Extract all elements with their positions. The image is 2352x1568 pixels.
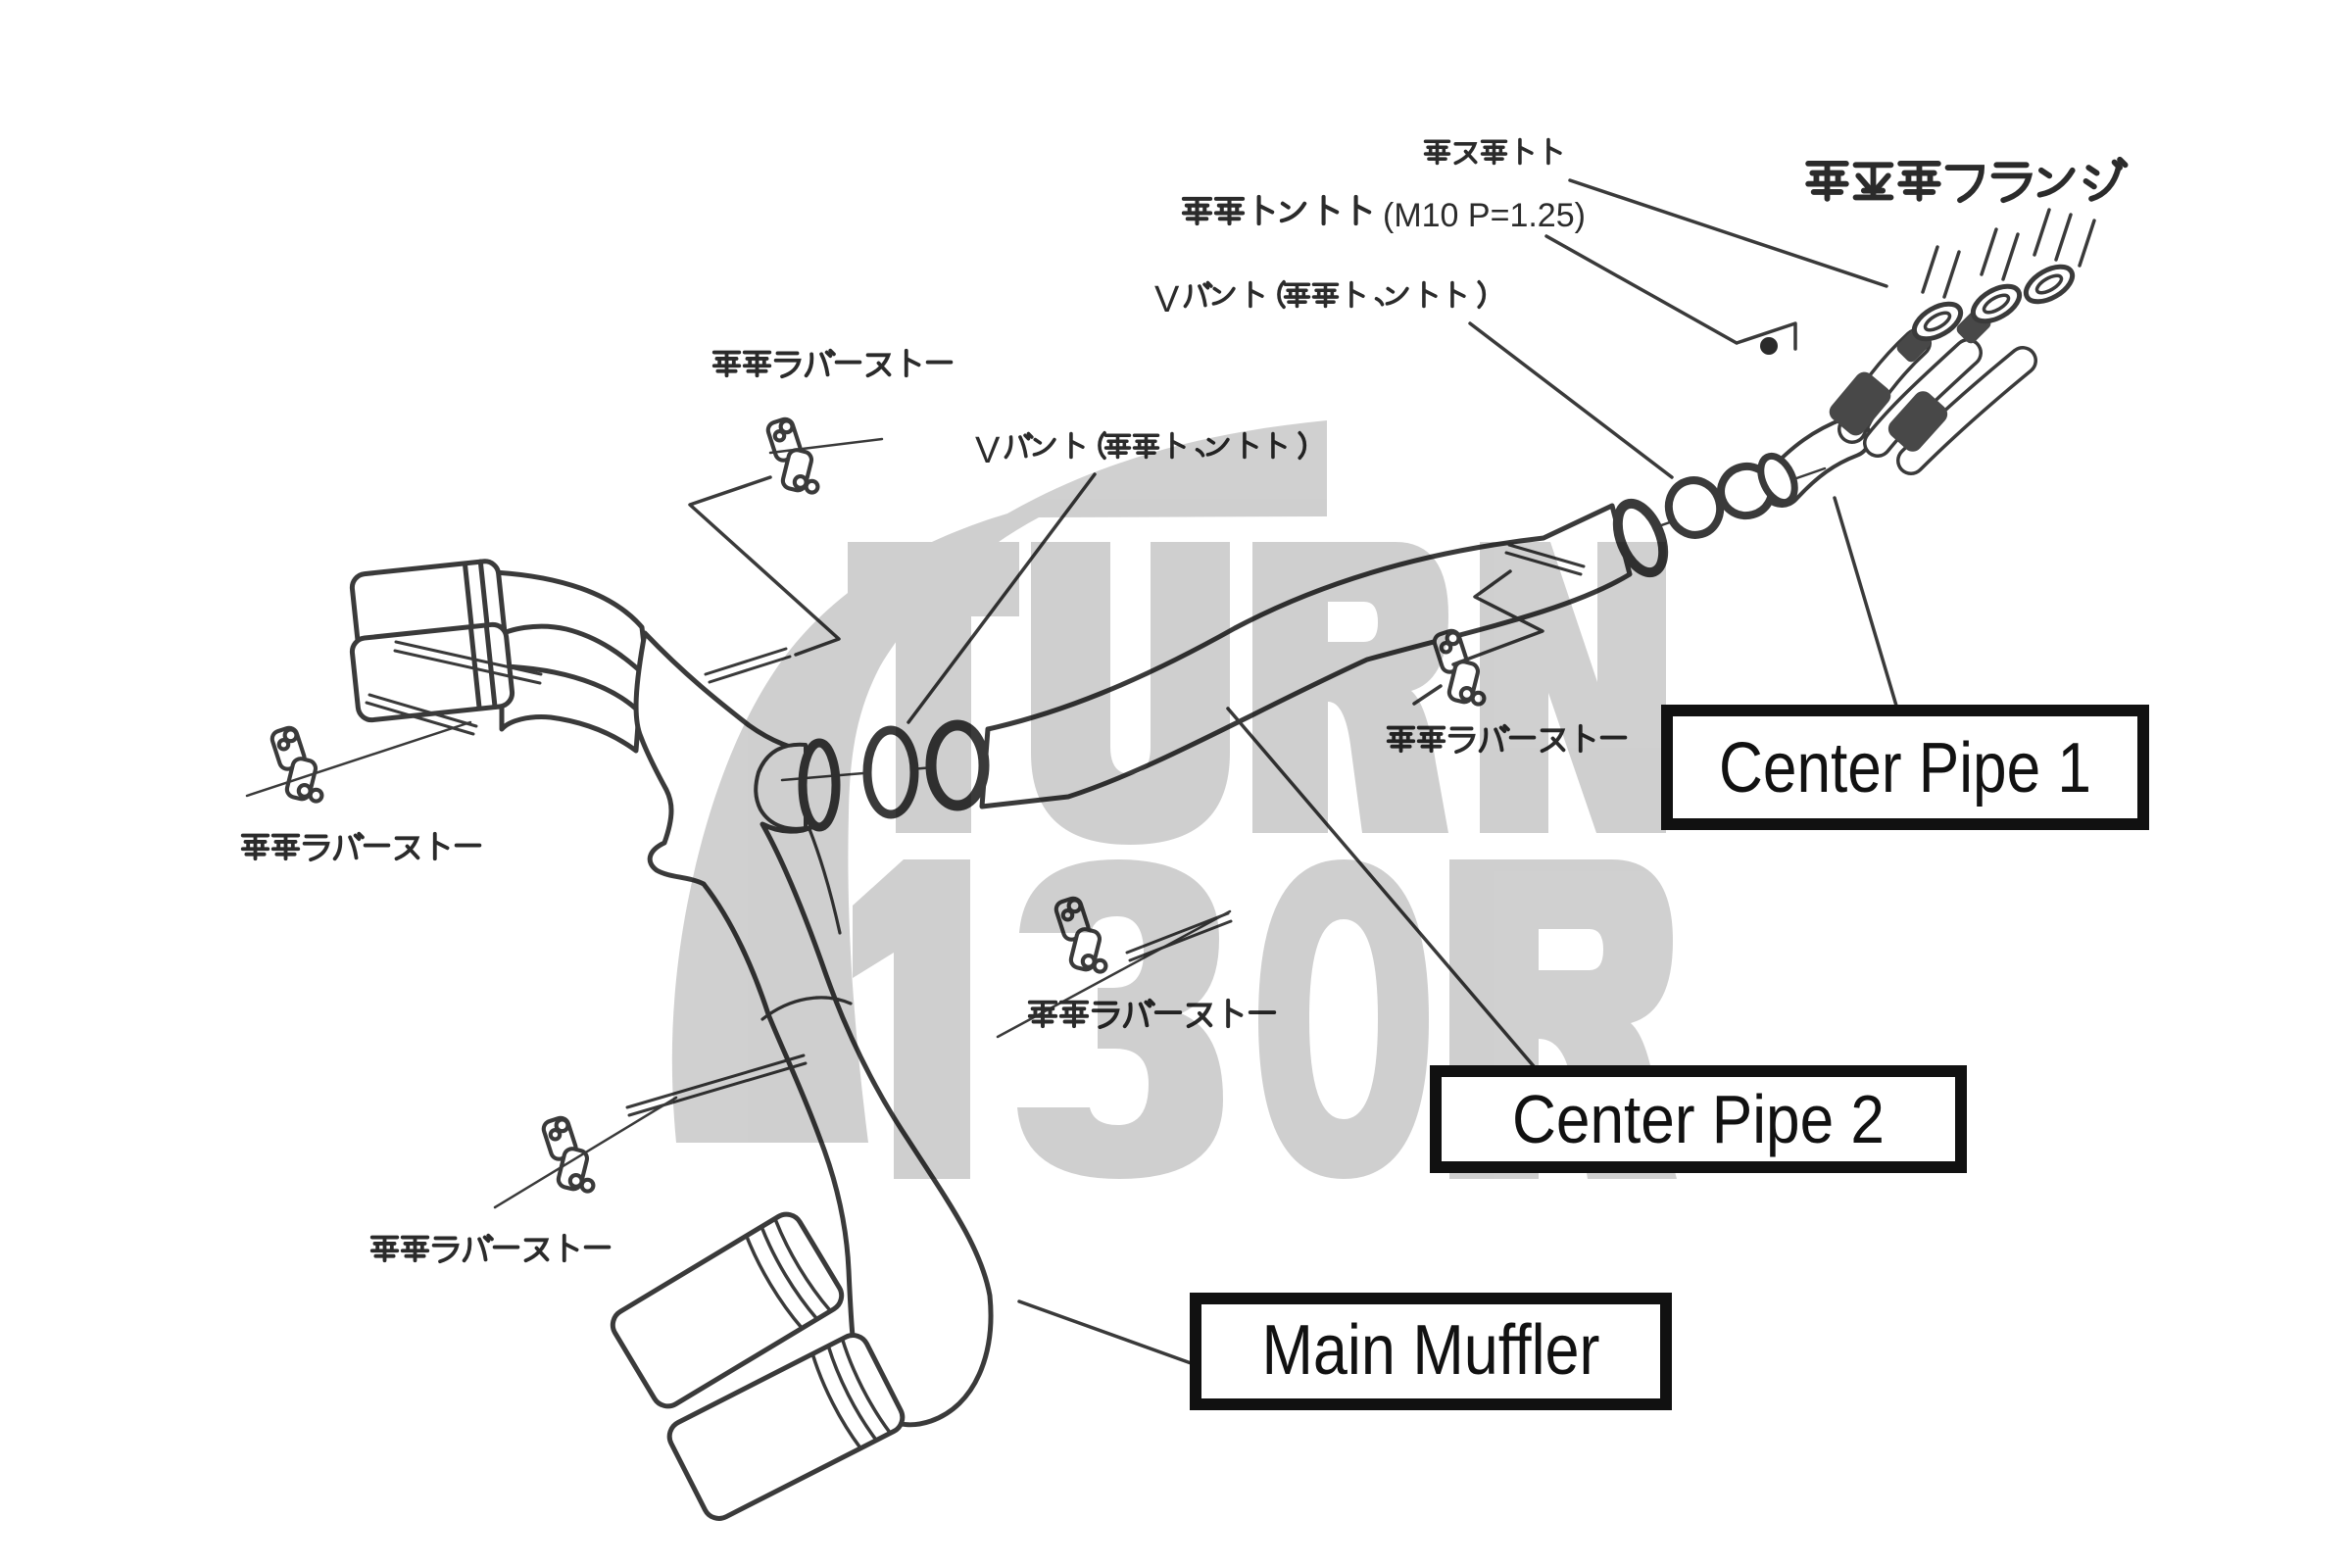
svg-text:Center Pipe 2: Center Pipe 2 (1512, 1081, 1885, 1157)
svg-text:Center Pipe 1: Center Pipe 1 (1719, 729, 2091, 808)
svg-text:V: V (1154, 279, 1180, 320)
svg-text:(M10 P=1.25): (M10 P=1.25) (1383, 197, 1586, 234)
svg-text:Main Muffler: Main Muffler (1262, 1311, 1600, 1390)
svg-text:V: V (975, 430, 1001, 471)
